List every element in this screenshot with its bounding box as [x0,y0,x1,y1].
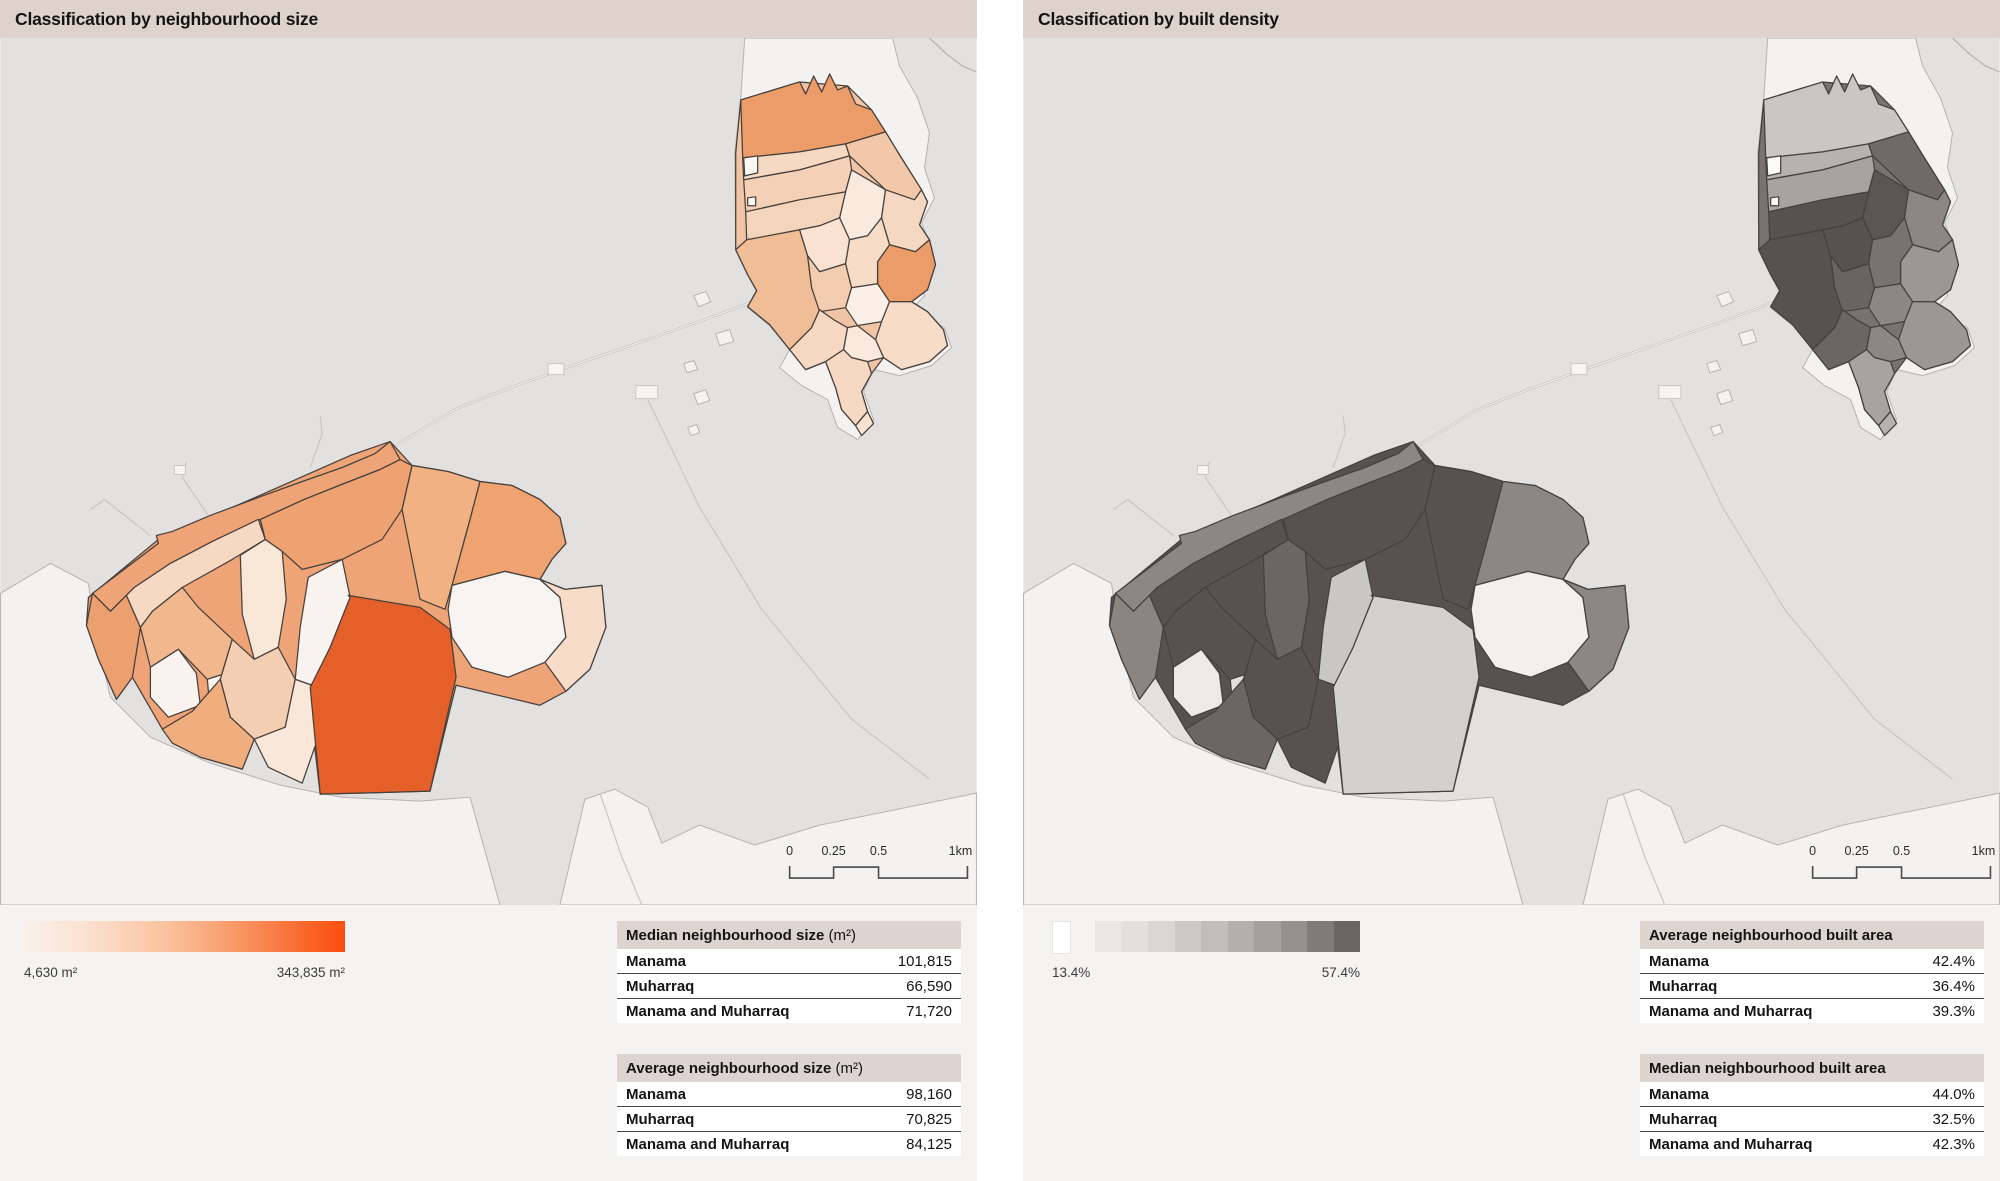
map-svg: 0 0.25 0.5 1km [1023,38,2000,905]
row-label: Manama and Muharraq [1649,1003,1812,1020]
row-label: Muharraq [626,1111,694,1128]
legend-step [1122,921,1149,952]
table-body: Manama101,815Muharraq66,590Manama and Mu… [617,949,961,1023]
legend-step [1201,921,1228,952]
scale-label-025: 0.25 [1844,844,1868,858]
table-title: Average neighbourhood built area [1649,927,1893,944]
neighbourhood-m4w [748,197,756,206]
table-row: Manama and Muharraq42.3% [1640,1132,1984,1156]
table-header: Average neighbourhood size (m²) [617,1054,961,1082]
panel-footer: 13.4% 57.4% Average neighbourhood built … [1023,905,2000,1181]
average-density-table: Average neighbourhood built area Manama4… [1640,921,1984,1023]
causeway-platform [548,364,564,375]
scale-label-0: 0 [786,844,793,858]
row-label: Muharraq [626,978,694,995]
row-value: 32.5% [1932,1111,1975,1128]
table-row: Manama and Muharraq84,125 [617,1132,961,1156]
row-label: Manama [626,953,686,970]
legend-zero-swatch [1052,921,1071,954]
row-value: 70,825 [906,1111,952,1128]
statistics-tables: Median neighbourhood size (m²) Manama101… [617,921,961,1181]
neighbourhood-m2w [1767,156,1781,176]
causeway-platform [1571,364,1587,375]
table-row: Muharraq66,590 [617,974,961,999]
panel-title-bar: Classification by built density [1023,0,2000,38]
table-header: Median neighbourhood size (m²) [617,921,961,949]
scale-label-1km: 1km [949,844,973,858]
legend-labels: 4,630 m² 343,835 m² [24,965,345,980]
row-label: Manama and Muharraq [626,1003,789,1020]
legend-step-bar [1095,921,1360,952]
row-label: Manama and Muharraq [1649,1136,1812,1153]
figure-canvas: Classification by neighbourhood size [0,0,2000,1181]
legend-labels: 13.4% 57.4% [1052,965,1360,980]
row-value: 101,815 [898,953,952,970]
row-value: 98,160 [906,1086,952,1103]
row-value: 36.4% [1932,978,1975,995]
map-svg: 0 0.25 0.5 1km [0,38,977,905]
table-title: Median neighbourhood size [626,927,824,944]
row-label: Manama and Muharraq [626,1136,789,1153]
causeway-platform [636,386,658,399]
table-row: Manama44.0% [1640,1082,1984,1107]
table-unit: (m²) [824,927,856,944]
legend-step [1281,921,1308,952]
median-density-table: Median neighbourhood built area Manama44… [1640,1054,1984,1156]
legend-step [1307,921,1334,952]
density-legend [1095,921,1360,952]
table-header: Median neighbourhood built area [1640,1054,1984,1082]
row-value: 66,590 [906,978,952,995]
row-label: Muharraq [1649,978,1717,995]
neighbourhood-m4w [1771,197,1779,206]
legend-step [1254,921,1281,952]
pier-head [1197,466,1208,475]
table-header: Average neighbourhood built area [1640,921,1984,949]
statistics-tables: Average neighbourhood built area Manama4… [1640,921,1984,1181]
legend-min-label: 13.4% [1052,965,1090,980]
scale-label-05: 0.5 [1893,844,1910,858]
panel-title: Classification by built density [1023,0,2000,38]
row-value: 42.3% [1932,1136,1975,1153]
scale-label-025: 0.25 [821,844,845,858]
table-unit: (m²) [831,1060,863,1077]
table-body: Manama44.0%Muharraq32.5%Manama and Muhar… [1640,1082,1984,1156]
causeway-platform [1659,386,1681,399]
table-row: Manama and Muharraq71,720 [617,999,961,1023]
legend-step [1148,921,1175,952]
legend-step [1175,921,1202,952]
median-size-table: Median neighbourhood size (m²) Manama101… [617,921,961,1023]
table-body: Manama42.4%Muharraq36.4%Manama and Muhar… [1640,949,1984,1023]
table-row: Muharraq70,825 [617,1107,961,1132]
table-title: Average neighbourhood size [626,1060,831,1077]
panel-title-bar: Classification by neighbourhood size [0,0,977,38]
row-value: 42.4% [1932,953,1975,970]
table-row: Muharraq32.5% [1640,1107,1984,1132]
panel-built-density: Classification by built density [1023,0,2000,1181]
legend-step [1095,921,1122,952]
scale-label-05: 0.5 [870,844,887,858]
table-row: Manama42.4% [1640,949,1984,974]
size-legend [24,921,345,952]
table-row: Manama101,815 [617,949,961,974]
table-row: Manama98,160 [617,1082,961,1107]
legend-max-label: 343,835 m² [277,965,345,980]
panel-neighbourhood-size: Classification by neighbourhood size [0,0,977,1181]
panel-footer: 4,630 m² 343,835 m² Median neighbourhood… [0,905,977,1181]
panel-title: Classification by neighbourhood size [0,0,977,38]
scale-label-1km: 1km [1972,844,1996,858]
choropleth-map-size: 0 0.25 0.5 1km [0,38,977,905]
scale-label-0: 0 [1809,844,1816,858]
legend-step [1228,921,1255,952]
row-label: Muharraq [1649,1111,1717,1128]
table-row: Manama and Muharraq39.3% [1640,999,1984,1023]
choropleth-map-density: 0 0.25 0.5 1km [1023,38,2000,905]
legend-step [1334,921,1361,952]
row-label: Manama [1649,953,1709,970]
row-value: 39.3% [1932,1003,1975,1020]
table-body: Manama98,160Muharraq70,825Manama and Muh… [617,1082,961,1156]
row-value: 71,720 [906,1003,952,1020]
row-label: Manama [626,1086,686,1103]
legend-gradient-bar [24,921,345,952]
row-value: 84,125 [906,1136,952,1153]
legend-min-label: 4,630 m² [24,965,77,980]
table-row: Muharraq36.4% [1640,974,1984,999]
row-label: Manama [1649,1086,1709,1103]
row-value: 44.0% [1932,1086,1975,1103]
pier-head [174,466,185,475]
average-size-table: Average neighbourhood size (m²) Manama98… [617,1054,961,1156]
table-title: Median neighbourhood built area [1649,1060,1886,1077]
legend-max-label: 57.4% [1322,965,1360,980]
neighbourhood-m2w [744,156,758,176]
